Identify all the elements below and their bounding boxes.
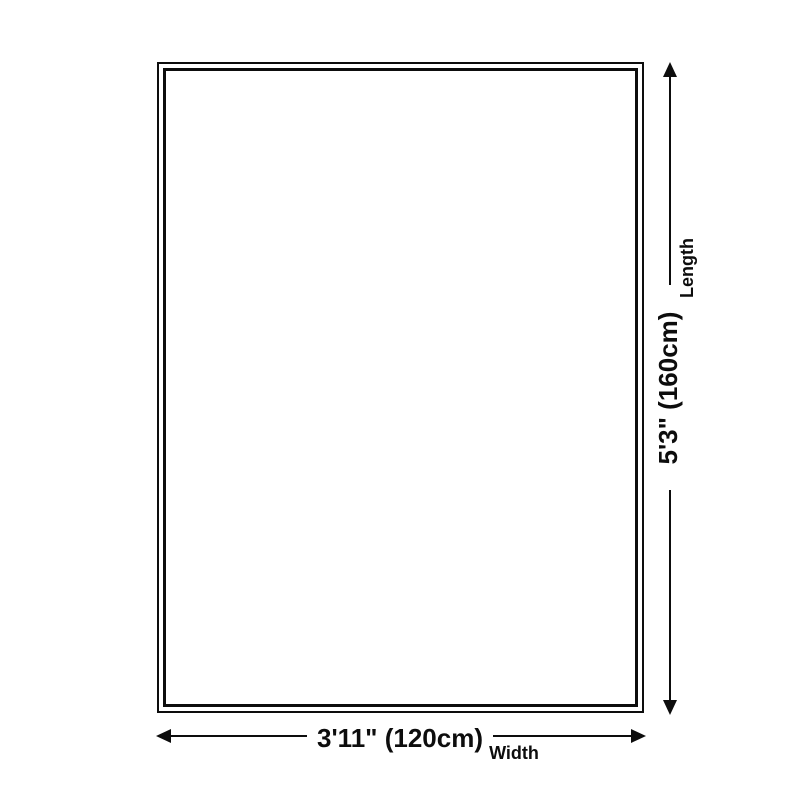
- width-dimension-line-left: [170, 735, 307, 737]
- length-dimension-line-top: [669, 75, 671, 285]
- width-dimension-line-right: [493, 735, 632, 737]
- length-dimension-line-bottom: [669, 490, 671, 701]
- width-arrow-right-icon: [631, 729, 646, 743]
- width-label: Width: [489, 744, 539, 762]
- size-diagram: Length 5'3" (160cm) 3'11" (120cm) Width: [0, 0, 800, 800]
- length-arrow-down-icon: [663, 700, 677, 715]
- length-value: 5'3" (160cm): [655, 312, 681, 465]
- rug-outline: [157, 62, 644, 713]
- length-label: Length: [678, 238, 696, 298]
- width-arrow-left-icon: [156, 729, 171, 743]
- width-value: 3'11" (120cm): [317, 725, 483, 751]
- rug-inner-border: [163, 68, 638, 707]
